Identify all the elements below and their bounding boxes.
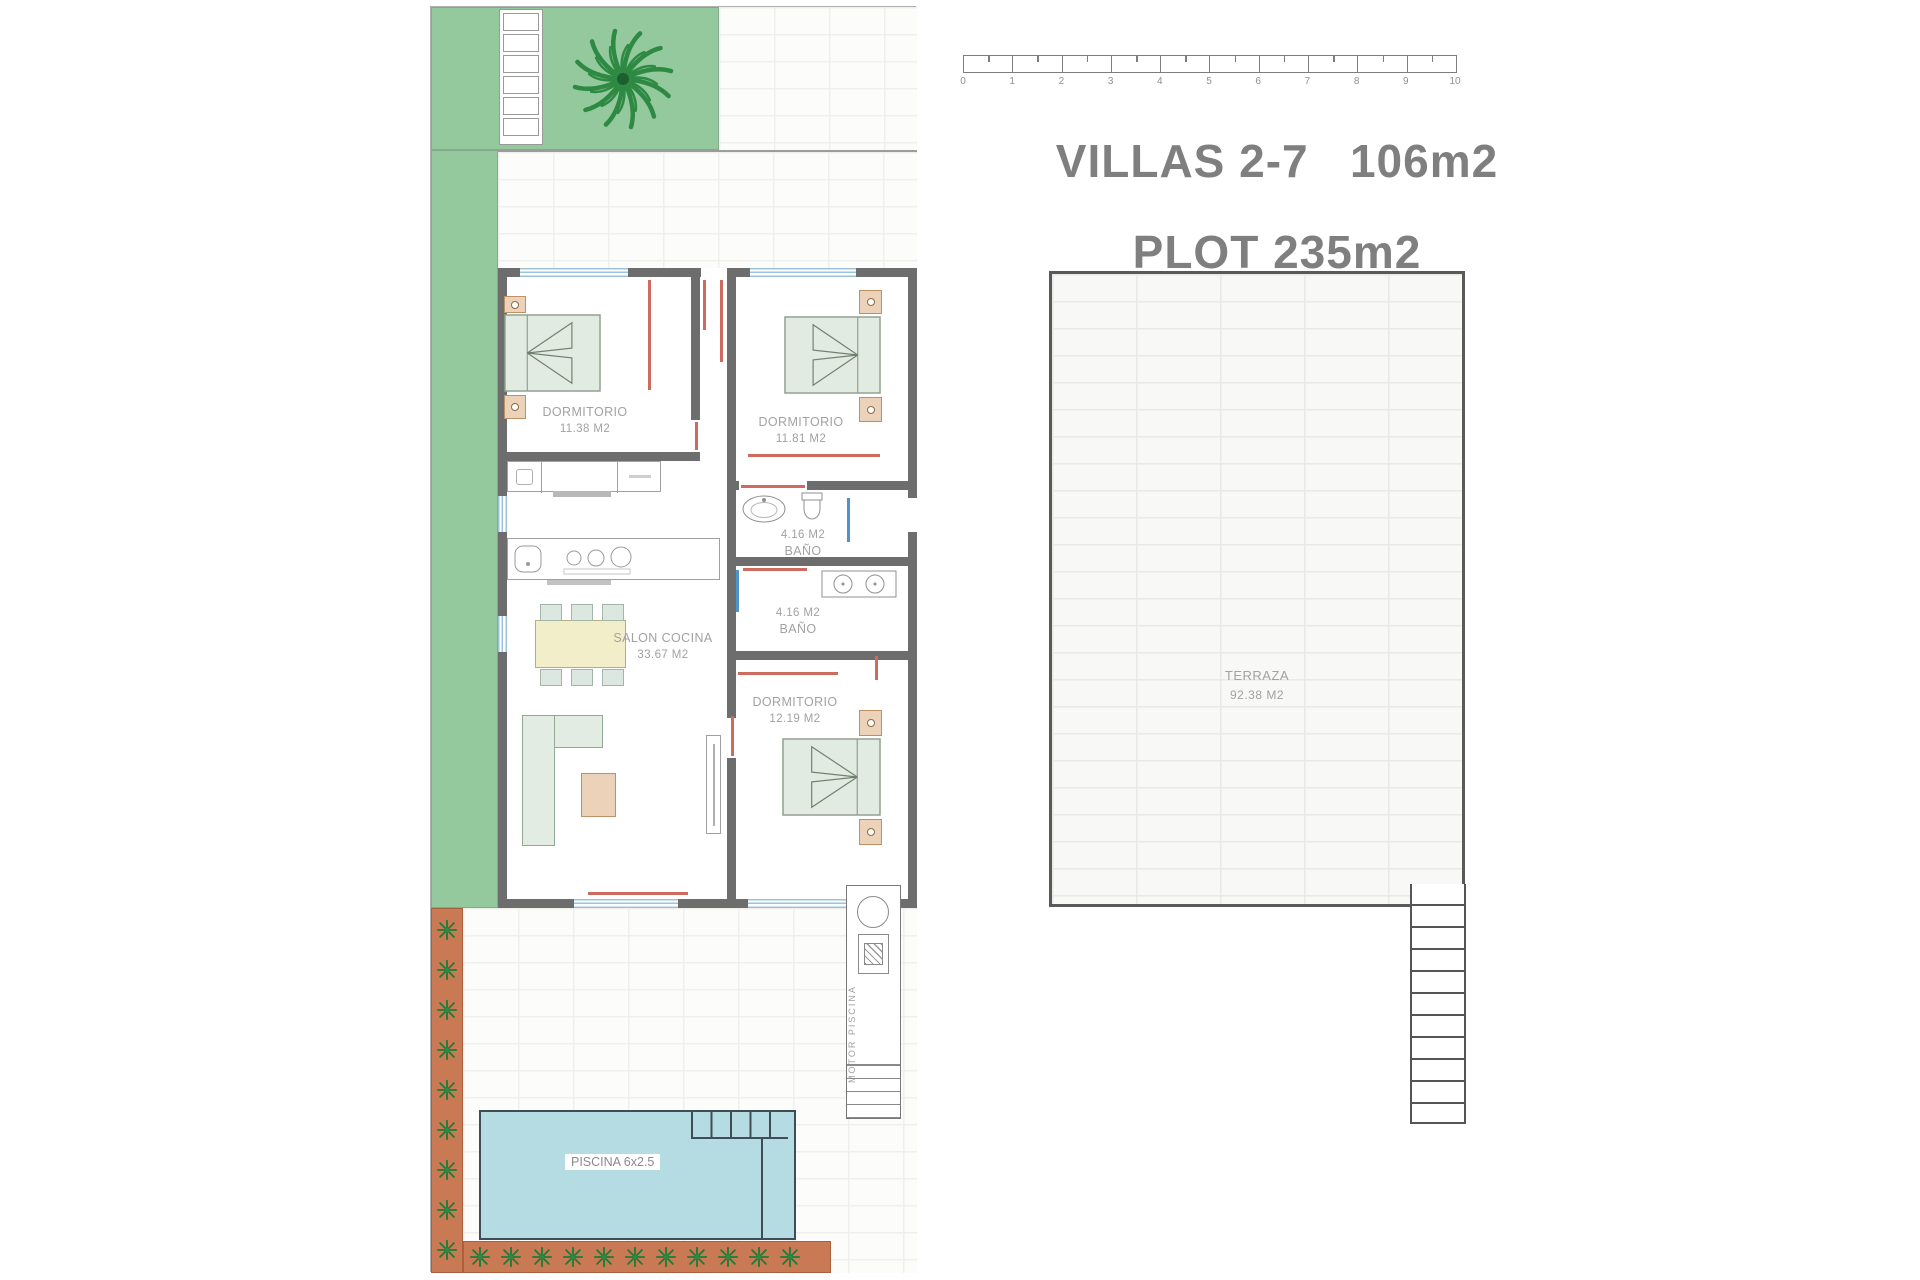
scale-tick-label: 6 [1255,76,1261,87]
scale-tick-label: 0 [960,76,966,87]
scale-cell [1260,56,1309,72]
scale-tick-label: 10 [1449,76,1460,87]
terrace-tiles-top-right [719,7,917,150]
dining-chair [571,669,593,686]
outdoor-shower-icon [857,896,889,928]
slider-bath1-door [741,485,805,488]
pool-divider [761,1139,763,1238]
bed-icon [504,314,601,392]
nightstand [859,290,882,314]
plant-icon [717,1246,739,1268]
plant-icon [686,1246,708,1268]
patio-glass-door [574,899,678,908]
footnotes: *Este plano es indicativo y puede variar… [935,1240,1525,1280]
wall-bath2-bottom [727,651,908,660]
dining-chair [540,669,562,686]
plant-icon [436,919,458,941]
plant-icon [593,1246,615,1268]
scale-tick-label: 2 [1059,76,1065,87]
title-line-1: VILLAS 2-7 106m2 [1027,134,1527,188]
entrance-door-gap [701,268,727,277]
scale-cell [1358,56,1407,72]
room-name: DORMITORIO [752,695,837,709]
slider-patio-door [588,892,688,895]
wardrobe-bed2 [748,454,880,457]
slider-bed3-right [875,656,878,680]
scale-cell [1013,56,1062,72]
bedroom1-label: DORMITORIO 11.38 M2 [515,404,655,437]
scale-cell [964,56,1013,72]
motor-room-steps [847,1064,900,1118]
garden-left-strip [431,150,498,908]
scale-bar-ruler [963,55,1457,73]
room-area: 4.16 M2 [781,529,825,541]
room-area: 33.67 M2 [637,649,688,661]
dining-chair [602,669,624,686]
terrace-stairs [1410,884,1466,1124]
room-name: BAÑO [784,544,821,558]
wall-bed1-hall [691,268,700,420]
plant-icon [436,1119,458,1141]
plant-icon [436,1079,458,1101]
pool-equipment-box [858,934,889,974]
bed-icon [782,738,881,816]
floor-plan-canvas: DORMITORIO 11.38 M2 DORMITORIO 11.81 M2 [0,0,1920,1280]
room-area: 4.16 M2 [776,607,820,619]
kitchen-counter [507,461,661,492]
slider-bed1-door [695,422,698,450]
villa-plot: DORMITORIO 11.38 M2 DORMITORIO 11.81 M2 [430,6,916,1272]
plant-icon [562,1246,584,1268]
dining-chair [540,604,562,621]
pergola-rung [503,34,539,52]
slider-bed1-closet [648,280,651,390]
room-area: 11.38 M2 [560,423,610,435]
scale-tick-label: 3 [1108,76,1114,87]
island-shadow [547,580,611,585]
bedroom2-label: DORMITORIO 11.81 M2 [731,414,871,447]
scale-bar: 012345678910 [963,55,1455,95]
scale-cell [1161,56,1210,72]
oven-icon [508,462,542,493]
room-name: BAÑO [779,622,816,636]
pergola [499,9,543,145]
plant-icon [436,1199,458,1221]
plant-icon [436,1239,458,1261]
closet-unit [617,462,662,493]
scale-cell [1210,56,1259,72]
window-living-left-1 [498,496,507,532]
plant-icon [779,1246,801,1268]
house: DORMITORIO 11.38 M2 DORMITORIO 11.81 M2 [498,268,917,908]
room-name: TERRAZA [1225,668,1289,683]
nightstand [504,296,526,313]
living-kitchen-label: SALON COCINA 33.67 M2 [593,630,733,663]
slider-hall-2 [720,280,723,362]
window-living-left-2 [498,616,507,652]
pergola-rung [503,97,539,115]
bathroom-sink-icon [741,494,787,524]
window-bed2 [750,268,856,277]
scale-cell [1408,56,1456,72]
counter-shadow [553,491,611,497]
room-name: DORMITORIO [758,415,843,429]
plant-icon [436,999,458,1021]
pool-label: PISCINA 6x2.5 [565,1154,660,1170]
coffee-table [581,773,616,817]
sofa [522,715,555,846]
room-name: SALON COCINA [613,631,712,645]
plant-icon [531,1246,553,1268]
pergola-rung [503,55,539,73]
pergola-rung [503,76,539,94]
plant-icon [436,1159,458,1181]
terrace-label: TERRAZA 92.38 M2 [1052,666,1462,705]
scale-tick-label: 8 [1354,76,1360,87]
room-area: 11.81 M2 [776,433,826,445]
plant-icon [500,1246,522,1268]
tv-unit [706,735,721,834]
bedroom3-label: DORMITORIO 12.19 M2 [725,694,865,727]
porch-tiles [498,150,917,268]
window-bed1 [520,268,628,277]
bed-icon [784,316,881,394]
scale-tick-label: 5 [1206,76,1212,87]
plant-icon [469,1246,491,1268]
slider-hall-1 [703,280,706,330]
wardrobe-bed3 [738,672,838,675]
plant-icon [748,1246,770,1268]
kitchen-sink-icon [513,544,543,574]
pool-steps [691,1112,788,1139]
pergola-rung [503,13,539,31]
kitchen-island [507,538,720,580]
hob-icon [560,543,638,577]
wall-bed1-bottom [498,452,700,461]
plant-icon [436,959,458,981]
plant-icon [655,1246,677,1268]
pergola-rung [503,118,539,136]
plant-icon [436,1039,458,1061]
palm-tree-icon [553,9,693,149]
plant-icon [624,1246,646,1268]
swimming-pool: PISCINA 6x2.5 [479,1110,796,1240]
wall-hall-right [727,268,736,660]
pool-motor-room: MOTOR PISCINA [846,885,901,1119]
scale-tick-label: 4 [1157,76,1163,87]
dining-chair [571,604,593,621]
scale-cell [1112,56,1161,72]
sofa [554,715,603,748]
scale-tick-label: 1 [1009,76,1015,87]
nightstand [859,819,882,845]
scale-cell [1063,56,1112,72]
room-area: 92.38 M2 [1230,688,1284,702]
window-bed3 [748,899,860,908]
wall-right [908,268,917,908]
room-area: 12.19 M2 [769,713,820,725]
scale-tick-label: 7 [1305,76,1311,87]
room-name: DORMITORIO [542,405,627,419]
bath1-window-gap [908,498,917,532]
bathroom2-label: 4.16 M2 BAÑO [728,604,868,637]
wall-bed3-left-b [727,758,736,908]
terrace: TERRAZA 92.38 M2 [1049,271,1465,907]
bathroom1-label: 4.16 M2 BAÑO [733,526,873,559]
double-sink-icon [821,570,897,598]
dining-chair [602,604,624,621]
slider-bath2-door [743,568,807,571]
toilet-icon [798,492,826,522]
scale-cell [1309,56,1358,72]
scale-tick-label: 9 [1403,76,1409,87]
